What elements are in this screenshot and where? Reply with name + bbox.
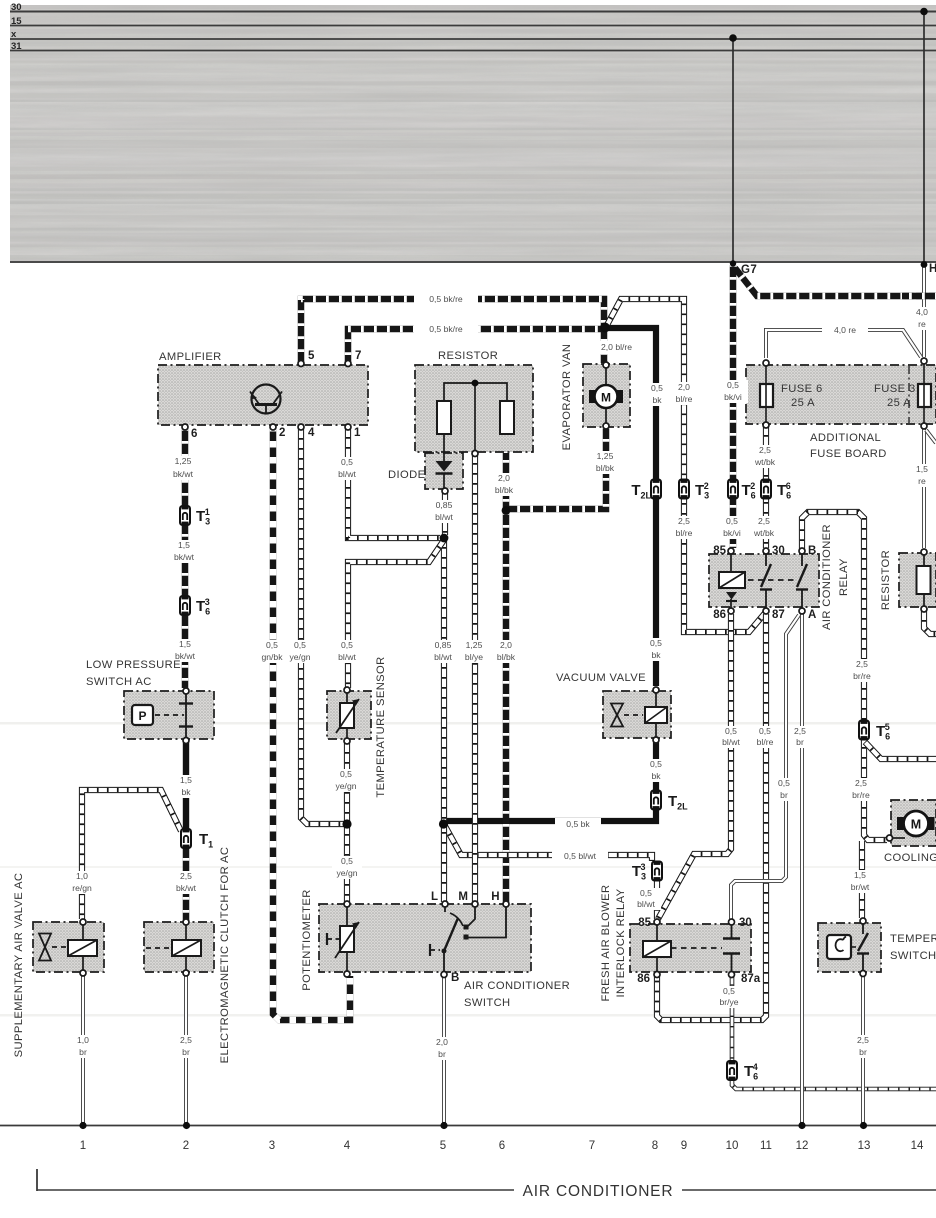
svg-text:br/re: br/re <box>852 790 870 800</box>
svg-text:0,5: 0,5 <box>341 457 353 467</box>
svg-text:bk/wt: bk/wt <box>176 883 197 893</box>
svg-text:86: 86 <box>713 609 726 621</box>
svg-text:4,0 re: 4,0 re <box>834 325 856 335</box>
svg-text:bk: bk <box>651 650 661 660</box>
svg-text:1,5: 1,5 <box>916 464 928 474</box>
svg-text:2,5: 2,5 <box>678 516 690 526</box>
svg-text:13: 13 <box>858 1140 871 1152</box>
svg-text:2,0: 2,0 <box>436 1037 448 1047</box>
svg-text:9: 9 <box>681 1140 687 1152</box>
svg-text:31: 31 <box>11 41 22 52</box>
svg-text:B: B <box>808 545 816 557</box>
svg-text:0,85: 0,85 <box>435 640 452 650</box>
svg-text:0,5: 0,5 <box>340 769 352 779</box>
svg-text:T32: T32 <box>695 481 709 501</box>
svg-text:0,5: 0,5 <box>725 726 737 736</box>
svg-text:6: 6 <box>499 1140 505 1152</box>
svg-text:2,5: 2,5 <box>855 778 867 788</box>
svg-text:0,5: 0,5 <box>723 986 735 996</box>
svg-text:1: 1 <box>80 1140 86 1152</box>
svg-text:2,5: 2,5 <box>180 871 192 881</box>
svg-text:gn/bk: gn/bk <box>261 652 283 662</box>
svg-text:RESISTOR: RESISTOR <box>438 350 498 362</box>
svg-text:2,5: 2,5 <box>856 659 868 669</box>
svg-text:T63: T63 <box>196 597 210 617</box>
svg-text:30: 30 <box>739 917 752 929</box>
svg-text:bk/wt: bk/wt <box>173 469 194 479</box>
svg-text:30: 30 <box>772 545 785 557</box>
svg-text:bl/wt: bl/wt <box>434 652 452 662</box>
svg-text:2,5: 2,5 <box>857 1035 869 1045</box>
svg-text:4,0: 4,0 <box>916 307 928 317</box>
svg-text:2,0: 2,0 <box>678 382 690 392</box>
svg-text:2: 2 <box>279 427 285 439</box>
svg-text:VACUUM VALVE: VACUUM VALVE <box>556 672 646 684</box>
svg-text:COOLING FAN: COOLING FAN <box>884 852 936 864</box>
svg-text:4: 4 <box>308 427 315 439</box>
svg-text:14: 14 <box>911 1140 924 1152</box>
svg-text:25 A: 25 A <box>791 397 815 409</box>
svg-text:1,25: 1,25 <box>175 456 192 466</box>
svg-text:T64: T64 <box>744 1062 758 1082</box>
svg-text:1,5: 1,5 <box>854 870 866 880</box>
svg-text:bl/bk: bl/bk <box>495 485 514 495</box>
svg-text:2,5: 2,5 <box>180 1035 192 1045</box>
svg-text:0,5 bk/re: 0,5 bk/re <box>429 324 463 334</box>
svg-text:0,5: 0,5 <box>266 640 278 650</box>
svg-text:AIR CONDITIONER: AIR CONDITIONER <box>523 1183 674 1200</box>
svg-text:re: re <box>918 319 926 329</box>
svg-text:85: 85 <box>713 545 726 557</box>
svg-text:5: 5 <box>440 1140 446 1152</box>
svg-text:0,5: 0,5 <box>650 638 662 648</box>
svg-text:0,5: 0,5 <box>640 888 652 898</box>
svg-text:bk/vi: bk/vi <box>724 392 742 402</box>
svg-text:bl/re: bl/re <box>757 737 774 747</box>
svg-text:br: br <box>79 1047 87 1057</box>
svg-text:TEMPERATURE: TEMPERATURE <box>890 933 936 945</box>
svg-text:2: 2 <box>183 1140 189 1152</box>
svg-text:ELECTROMAGNETIC CLUTCH FOR AC: ELECTROMAGNETIC CLUTCH FOR AC <box>219 847 231 1064</box>
svg-text:0,85: 0,85 <box>436 500 453 510</box>
svg-text:br: br <box>780 790 788 800</box>
svg-text:2,5: 2,5 <box>758 516 770 526</box>
svg-text:FUSE 3: FUSE 3 <box>874 383 916 395</box>
svg-text:re: re <box>918 476 926 486</box>
svg-text:2,5: 2,5 <box>759 445 771 455</box>
svg-text:86: 86 <box>637 973 650 985</box>
svg-text:2,5: 2,5 <box>794 726 806 736</box>
svg-text:2,0: 2,0 <box>498 473 510 483</box>
svg-text:A: A <box>808 609 816 621</box>
svg-text:bl/bk: bl/bk <box>596 463 615 473</box>
svg-text:H: H <box>491 891 499 903</box>
svg-text:AIR CONDITIONER: AIR CONDITIONER <box>821 524 833 630</box>
svg-text:FUSE 6: FUSE 6 <box>781 383 823 395</box>
svg-text:0,5: 0,5 <box>726 516 738 526</box>
svg-text:ye/gn: ye/gn <box>335 781 356 791</box>
svg-text:bl/re: bl/re <box>676 394 693 404</box>
svg-text:LOW PRESSURE: LOW PRESSURE <box>86 659 181 671</box>
svg-text:T62: T62 <box>742 481 756 501</box>
svg-text:2,0: 2,0 <box>500 640 512 650</box>
svg-text:RELAY: RELAY <box>838 558 850 596</box>
svg-text:x: x <box>11 29 17 40</box>
svg-text:15: 15 <box>11 16 22 27</box>
svg-text:bl/ye: bl/ye <box>465 652 483 662</box>
svg-text:bl/wt: bl/wt <box>637 899 655 909</box>
svg-text:br/wt: br/wt <box>851 882 870 892</box>
svg-text:wt/bk: wt/bk <box>754 457 776 467</box>
svg-text:T66: T66 <box>777 481 791 501</box>
svg-text:10: 10 <box>726 1140 739 1152</box>
svg-text:M: M <box>601 391 611 405</box>
svg-text:AMPLIFIER: AMPLIFIER <box>159 351 222 363</box>
svg-text:0,5: 0,5 <box>778 778 790 788</box>
svg-text:AIR CONDITIONER: AIR CONDITIONER <box>464 980 570 992</box>
svg-text:ADDITIONAL: ADDITIONAL <box>810 432 881 444</box>
svg-text:T31: T31 <box>196 507 210 527</box>
svg-text:0,5: 0,5 <box>651 383 663 393</box>
svg-text:SWITCH AC: SWITCH AC <box>86 676 152 688</box>
svg-text:0,5 bk: 0,5 bk <box>566 819 590 829</box>
svg-text:0,5: 0,5 <box>341 640 353 650</box>
svg-text:br: br <box>859 1047 867 1057</box>
svg-text:6: 6 <box>191 428 197 440</box>
svg-text:1,5: 1,5 <box>178 540 190 550</box>
svg-text:re/gn: re/gn <box>72 883 92 893</box>
svg-text:7: 7 <box>355 350 361 362</box>
svg-text:2,0 bl/re: 2,0 bl/re <box>601 342 632 352</box>
svg-text:TEMPERATURE SENSOR: TEMPERATURE SENSOR <box>375 656 387 797</box>
svg-text:SWITCH: SWITCH <box>890 950 936 962</box>
svg-text:bl/wt: bl/wt <box>435 512 453 522</box>
svg-text:T33: T33 <box>632 862 646 882</box>
svg-text:L: L <box>431 891 438 903</box>
svg-text:br: br <box>796 737 804 747</box>
svg-text:87: 87 <box>772 609 785 621</box>
svg-text:0,5 bl/wt: 0,5 bl/wt <box>564 851 597 861</box>
svg-text:br: br <box>182 1047 190 1057</box>
svg-text:12: 12 <box>796 1140 809 1152</box>
svg-text:SWITCH: SWITCH <box>464 997 511 1009</box>
svg-text:0,5 bk/re: 0,5 bk/re <box>429 294 463 304</box>
svg-text:bl/wt: bl/wt <box>722 737 740 747</box>
svg-text:3: 3 <box>269 1140 275 1152</box>
svg-text:0,5: 0,5 <box>759 726 771 736</box>
svg-text:1,5: 1,5 <box>179 639 191 649</box>
svg-text:1,25: 1,25 <box>597 451 614 461</box>
svg-text:0,5: 0,5 <box>727 380 739 390</box>
svg-text:5: 5 <box>308 350 315 362</box>
svg-text:EVAPORATOR VAN: EVAPORATOR VAN <box>561 344 573 451</box>
svg-text:bl/wt: bl/wt <box>338 652 356 662</box>
svg-text:T65: T65 <box>876 722 890 742</box>
svg-text:G7: G7 <box>741 264 757 276</box>
svg-text:INTERLOCK RELAY: INTERLOCK RELAY <box>615 888 627 997</box>
svg-text:1: 1 <box>354 427 361 439</box>
svg-text:0,5: 0,5 <box>650 759 662 769</box>
svg-text:RESISTOR: RESISTOR <box>880 550 892 610</box>
svg-text:DIODE: DIODE <box>388 469 425 481</box>
svg-text:ye/gn: ye/gn <box>289 652 310 662</box>
svg-text:bl/bk: bl/bk <box>497 652 516 662</box>
svg-text:wt/bk: wt/bk <box>753 528 775 538</box>
svg-text:FRESH AIR BLOWER: FRESH AIR BLOWER <box>600 884 612 1001</box>
svg-text:br/ye: br/ye <box>719 997 738 1007</box>
svg-text:4: 4 <box>344 1140 351 1152</box>
svg-text:1,5: 1,5 <box>180 775 192 785</box>
svg-text:M: M <box>911 818 921 832</box>
svg-text:P: P <box>138 709 146 723</box>
svg-text:H: H <box>929 263 936 275</box>
svg-text:25 A: 25 A <box>887 397 911 409</box>
svg-text:7: 7 <box>589 1140 595 1152</box>
svg-text:30: 30 <box>11 2 22 13</box>
svg-text:87a: 87a <box>741 973 761 985</box>
svg-text:ye/gn: ye/gn <box>336 868 357 878</box>
svg-text:SUPPLEMENTARY AIR VALVE AC: SUPPLEMENTARY AIR VALVE AC <box>13 873 25 1058</box>
svg-text:bk/wt: bk/wt <box>174 552 195 562</box>
svg-text:bk: bk <box>181 787 191 797</box>
svg-text:11: 11 <box>760 1140 772 1152</box>
svg-text:85: 85 <box>638 917 651 929</box>
svg-text:bk: bk <box>651 771 661 781</box>
svg-text:br: br <box>438 1049 446 1059</box>
svg-text:br/re: br/re <box>853 671 871 681</box>
svg-text:POTENTIOMETER: POTENTIOMETER <box>301 889 313 991</box>
svg-text:FUSE BOARD: FUSE BOARD <box>810 448 887 460</box>
svg-text:1,0: 1,0 <box>76 871 88 881</box>
svg-text:M: M <box>458 891 468 903</box>
svg-text:B: B <box>451 972 459 984</box>
svg-text:1,25: 1,25 <box>466 640 483 650</box>
svg-text:bl/re: bl/re <box>676 528 693 538</box>
svg-text:bk/vi: bk/vi <box>723 528 741 538</box>
svg-text:1,0: 1,0 <box>77 1035 89 1045</box>
svg-text:bl/wt: bl/wt <box>338 469 356 479</box>
svg-text:0,5: 0,5 <box>294 640 306 650</box>
svg-text:bk: bk <box>652 395 662 405</box>
svg-text:0,5: 0,5 <box>341 856 353 866</box>
svg-text:8: 8 <box>652 1140 658 1152</box>
